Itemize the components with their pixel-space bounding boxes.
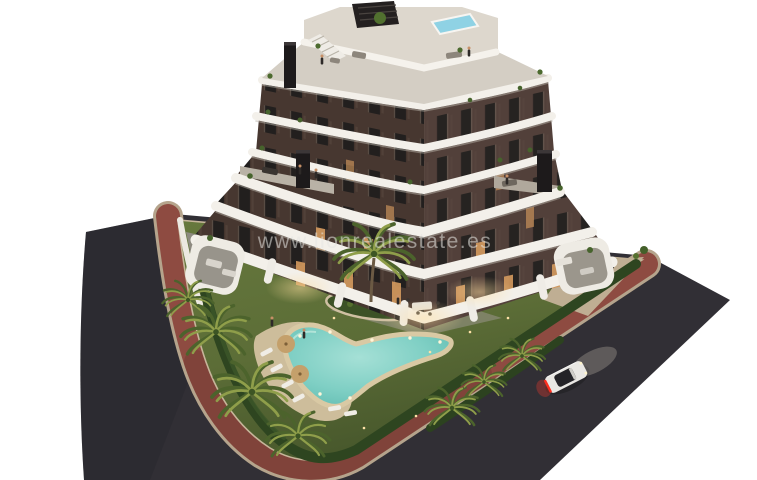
chimney-top-left	[284, 42, 296, 88]
roof-tree	[374, 12, 386, 24]
chimney-right	[537, 150, 552, 192]
watermark-text: www.lionrealestate.es	[257, 230, 493, 253]
chimney-mid-left	[296, 150, 310, 188]
render-image: www.lionrealestate.es	[0, 0, 757, 480]
scene-svg: www.lionrealestate.es	[0, 0, 757, 480]
